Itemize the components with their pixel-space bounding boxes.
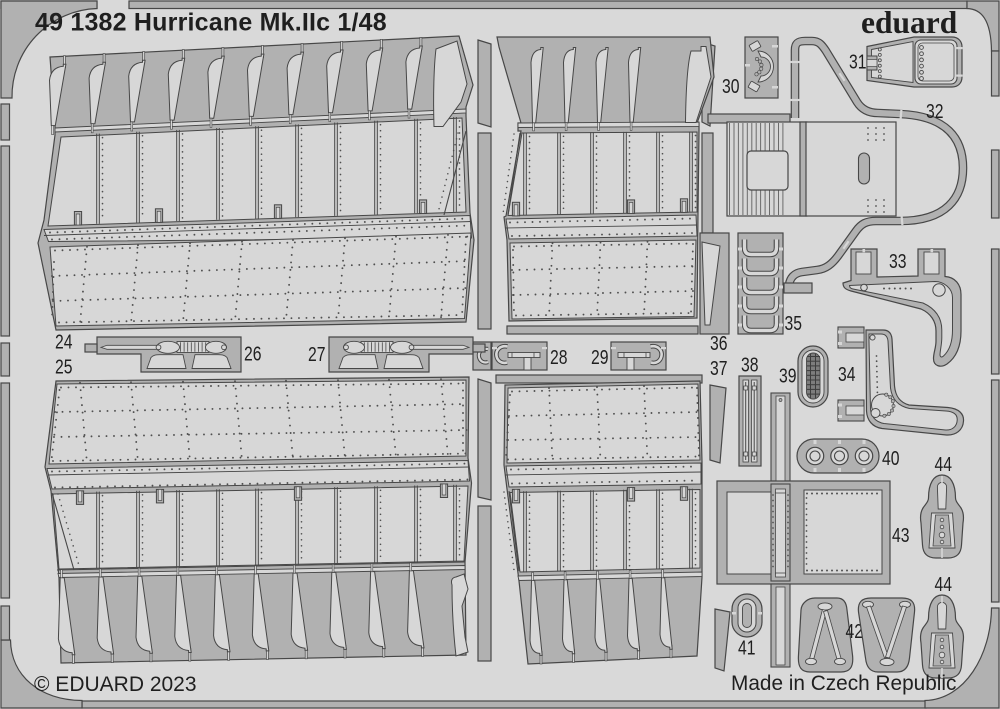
svg-text:24: 24 bbox=[55, 332, 73, 354]
svg-text:35: 35 bbox=[785, 313, 803, 335]
svg-text:25: 25 bbox=[55, 357, 73, 379]
svg-text:37: 37 bbox=[710, 358, 728, 380]
svg-text:27: 27 bbox=[308, 344, 326, 366]
svg-text:30: 30 bbox=[722, 76, 740, 98]
svg-text:43: 43 bbox=[892, 525, 910, 547]
svg-text:28: 28 bbox=[550, 347, 568, 369]
svg-text:Made in Czech Republic: Made in Czech Republic bbox=[731, 672, 956, 695]
svg-text:31: 31 bbox=[849, 52, 867, 74]
svg-text:29: 29 bbox=[591, 347, 609, 369]
svg-text:33: 33 bbox=[889, 251, 907, 273]
svg-text:© EDUARD 2023: © EDUARD 2023 bbox=[34, 673, 197, 696]
svg-text:38: 38 bbox=[741, 355, 759, 377]
svg-text:40: 40 bbox=[882, 448, 900, 470]
svg-text:41: 41 bbox=[738, 638, 756, 660]
svg-text:32: 32 bbox=[926, 101, 944, 123]
svg-text:eduard: eduard bbox=[861, 5, 958, 40]
svg-text:36: 36 bbox=[710, 333, 728, 355]
svg-text:49 1382 Hurricane Mk.IIc 1/4: 49 1382 Hurricane Mk.IIc 1/48 bbox=[35, 9, 387, 37]
svg-text:34: 34 bbox=[838, 364, 856, 386]
svg-text:26: 26 bbox=[244, 344, 262, 366]
svg-text:39: 39 bbox=[779, 366, 797, 388]
svg-text:44: 44 bbox=[935, 574, 953, 596]
svg-text:44: 44 bbox=[935, 454, 953, 476]
